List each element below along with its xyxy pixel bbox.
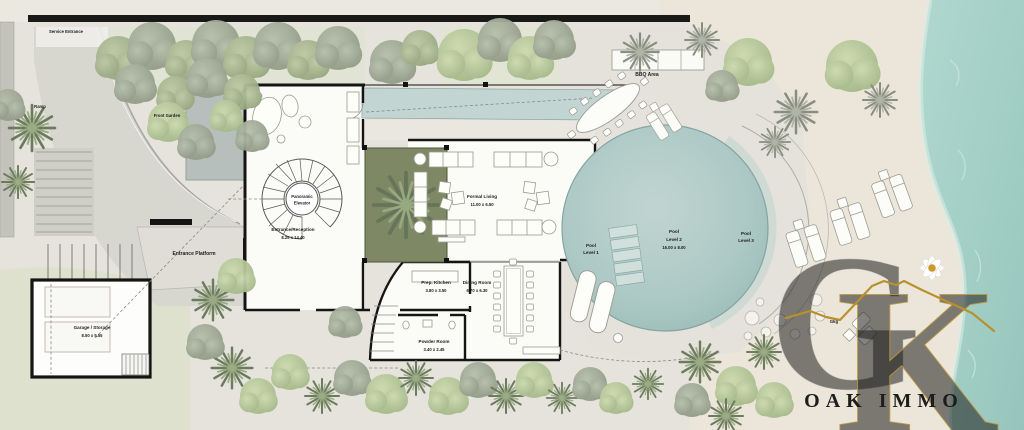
- label-pool1-b: Level 1: [583, 250, 599, 255]
- label-ramp: Ramp: [34, 104, 46, 109]
- label-garage-name: Garage / Storage: [74, 325, 111, 330]
- label-pool3-b: Level 3: [738, 238, 754, 243]
- label-kitchen-name: Prep. Kitchen: [421, 280, 451, 285]
- logo-watermark: G K OAK IMMO: [769, 215, 1000, 430]
- label-kitchen-dims: 3.80 x 3.50: [426, 288, 448, 293]
- label-bbq-area: BBQ Area: [635, 72, 659, 78]
- label-formal-living-name: Formal Living: [467, 194, 497, 199]
- label-reception-name: Entrance/Reception: [271, 227, 314, 232]
- floor-plan-canvas: Service Entrance Ramp Front Garden Entra…: [0, 0, 1024, 430]
- boundary-wall-left: [0, 22, 14, 237]
- pool-level2: [562, 125, 768, 331]
- label-formal-living-dims: 11.00 x 6.50: [470, 202, 494, 207]
- label-service-entrance: Service Entrance: [49, 29, 84, 34]
- label-garage-dims: 8.50 x 5.55: [82, 333, 104, 338]
- label-elevator-1: Panoramic: [291, 194, 313, 199]
- panoramic-elevator: [286, 183, 318, 215]
- garage-stairs: [122, 354, 149, 375]
- logo-wordmark: OAK IMMO: [804, 390, 964, 412]
- label-front-garden: Front Garden: [154, 113, 181, 118]
- label-elevator-2: Elevator: [294, 201, 311, 206]
- label-dining-dims: 6.70 x 6.30: [467, 288, 489, 293]
- label-dining-name: Dining Room: [463, 280, 492, 285]
- label-pool2-b: Level 2: [666, 237, 682, 242]
- site-plan-svg: Service Entrance Ramp Front Garden Entra…: [0, 0, 1024, 430]
- logo-flower-icon: [920, 256, 944, 280]
- label-pool1-a: Pool: [586, 243, 596, 248]
- label-pool3-a: Pool: [741, 231, 751, 236]
- label-pool2-dims: 16.00 x 8.00: [662, 245, 686, 250]
- label-entrance-platform: Entrance Platform: [172, 251, 216, 257]
- boundary-wall-top: [28, 15, 690, 22]
- label-pool2-a: Pool: [669, 229, 679, 234]
- label-powder-dims: 3.40 x 2.45: [424, 347, 446, 352]
- label-powder-name: Powder Room: [419, 339, 450, 344]
- label-reception-dims: 8.25 x 14.40: [281, 235, 305, 240]
- walkway: [362, 120, 595, 140]
